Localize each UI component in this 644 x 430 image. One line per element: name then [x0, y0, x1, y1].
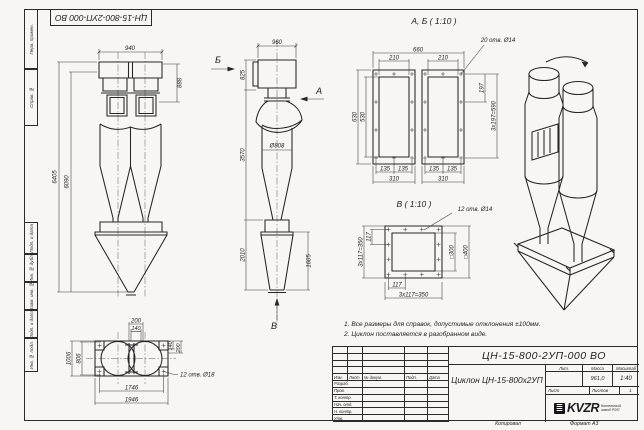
title-block-revision-grid: Изм. Лист № докум. Подп. Дата Разраб. Пр… [333, 347, 449, 420]
company-name: Котельный завод РЭП [601, 404, 631, 413]
dim-825: 825 [241, 69, 247, 80]
dim-806: 806 [77, 353, 83, 364]
frame-label-text: Справ. № [29, 87, 34, 108]
dim-3570: 3570 [241, 148, 247, 162]
scale-value: 1:40 [613, 372, 639, 386]
dim-660: 660 [413, 48, 424, 54]
side-view-outline [253, 60, 302, 293]
drawing-notes: 1. Все размеры для справок, допустимые о… [344, 320, 634, 340]
dim-135-1: 135 [380, 167, 391, 173]
lit-cells [546, 372, 583, 386]
dim-210-left: 210 [388, 56, 400, 62]
plan-view-outline [95, 341, 168, 376]
company-logo-text: KVZR [567, 401, 599, 415]
side-view-dim-lines [244, 43, 324, 320]
front-view-outline [95, 62, 167, 295]
frame-label-text: Подп. и дата [29, 310, 34, 339]
holes-note-20: 20 отв. Ø14 [480, 38, 516, 44]
front-view-drawing: 940 888 6405 6090 Б [45, 36, 245, 328]
frame-label-podp-data-1: Подп. и дата [24, 222, 38, 254]
dim-530: 530 [361, 111, 367, 122]
dim-3x117-left: 3x117=350 [359, 237, 365, 267]
mass-label: Масса [583, 365, 613, 371]
format-label: Формат А3 [570, 421, 598, 427]
dim-940: 940 [125, 46, 136, 52]
flange-outlines [373, 70, 464, 164]
dim-1006: 1006 [67, 351, 73, 365]
sheet-label: Лист [546, 387, 590, 394]
view-arrow-label-a: А [315, 86, 322, 96]
product-name: Циклон ЦН-15-800х2УП [449, 365, 546, 422]
company-logo-icon: ≣ [554, 403, 565, 414]
view-ab-flanges-drawing: А, Б ( 1:10 ) 660 210 210 630 5 [346, 12, 532, 194]
view-v-flange-drawing: В ( 1:10 ) 3x117=350 117 □300 □400 12 от… [352, 196, 504, 322]
dim-1605: 1605 [307, 254, 313, 268]
frame-label-text: Подп. и дата [29, 224, 34, 253]
dim-square-400: □400 [464, 245, 470, 259]
holes-note-12-14: 12 отв. Ø14 [458, 207, 493, 213]
copied-label: Копировал [468, 421, 548, 427]
frame-label-sprav-no: Справ. № [24, 69, 38, 126]
dim-135-2: 135 [398, 167, 409, 173]
dim-888: 888 [178, 77, 184, 88]
frame-label-inv-dubl: Инв. № дубл. [24, 254, 38, 282]
dim-2010: 2010 [241, 248, 247, 263]
dim-960: 960 [272, 40, 283, 46]
frame-label-text: Инв. № дубл. [29, 254, 34, 282]
dim-117-bottom: 117 [392, 283, 402, 289]
row-tkontr: Т. контр. [333, 395, 363, 402]
dim-117-top: 117 [367, 232, 373, 242]
col-izm: Изм. [333, 374, 348, 381]
col-docnum: № докум. [363, 374, 405, 381]
view-ab-title: А, Б ( 1:10 ) [410, 16, 456, 26]
plan-view-drawing: 200 140 140 200 1006 806 1746 1946 12 от… [52, 316, 247, 428]
lit-label: Лит. [546, 365, 583, 371]
dim-200-right: 200 [176, 344, 182, 354]
isometric-view-drawing [512, 48, 622, 323]
square-flange-holes [387, 228, 441, 277]
row-utv: Утв. [333, 415, 363, 422]
note-line-1: 1. Все размеры для справок, допустимые о… [344, 320, 634, 330]
frame-label-vzam-inv: Взам. инв. № [24, 282, 38, 310]
dim-3x117-bottom: 3x117=350 [399, 293, 429, 299]
title-block: Изм. Лист № докум. Подп. Дата Разраб. Пр… [332, 346, 638, 421]
scale-label: Масштаб [613, 365, 639, 371]
frame-label-text: Взам. инв. № [29, 282, 34, 310]
frame-label-text: Перв. примен. [29, 24, 34, 55]
note-line-2: 2. Циклон поставляется в разобранном вид… [344, 330, 634, 340]
view-v-title: В ( 1:10 ) [397, 199, 432, 209]
dim-square-300: □300 [450, 245, 456, 259]
dim-310-left: 310 [389, 177, 400, 183]
sheets-label: Листов [590, 387, 620, 394]
document-code-rotated: ЦН-15-800-2УП-000 ВО [55, 13, 147, 23]
frame-label-text: Инв. № подл. [29, 341, 34, 370]
dim-135-3: 135 [429, 167, 440, 173]
title-block-right: ЦН-15-800-2УП-000 ВО Циклон ЦН-15-800х2У… [449, 347, 639, 420]
col-data: Дата [428, 374, 449, 381]
holes-note-12-18: 12 отв. Ø18 [180, 373, 215, 379]
row-nachotd: Нач. отд. [333, 402, 363, 409]
document-code: ЦН-15-800-2УП-000 ВО [449, 347, 639, 365]
sheets-value: 1 [620, 387, 639, 394]
dim-197: 197 [480, 82, 486, 93]
dim-135-4: 135 [447, 167, 458, 173]
col-list: Лист [348, 374, 363, 381]
drawing-sheet: Перв. примен. Справ. № Подп. и дата Инв.… [0, 0, 644, 430]
dim-210-right: 210 [437, 56, 449, 62]
dim-140-top: 140 [132, 326, 141, 332]
view-arrow-label-b: Б [215, 55, 221, 65]
dim-1946: 1946 [125, 398, 139, 404]
title-block-info: Лит. Масса Масштаб 961,0 1:40 Лист Листо… [546, 365, 639, 422]
dim-3x197: 3x197=590 [492, 100, 498, 131]
mass-value: 961,0 [583, 372, 613, 386]
side-view-drawing: 960 825 3570 2010 1605 Ø808 А В [232, 28, 350, 333]
flange-bolt-holes [374, 72, 463, 160]
dim-6090: 6090 [65, 175, 71, 189]
col-podp: Подп. [405, 374, 428, 381]
dim-1746: 1746 [125, 386, 139, 392]
dim-diameter-808: Ø808 [269, 144, 285, 150]
company-block: ≣ KVZR Котельный завод РЭП [546, 395, 639, 421]
dim-200-top: 200 [130, 319, 142, 325]
frame-label-podp-data-2: Подп. и дата [24, 310, 38, 338]
row-razrab: Разраб. [333, 381, 363, 388]
row-nkontr: Н. контр. [333, 408, 363, 415]
square-flange-outline [385, 226, 442, 278]
top-document-code-stamp: ЦН-15-800-2УП-000 ВО [50, 9, 152, 26]
view-arrow-label-v: В [271, 321, 277, 331]
frame-label-inv-podl: Инв. № подл. [24, 338, 38, 372]
frame-label-perv-primen: Перв. примен. [24, 9, 38, 69]
iso-outline [514, 57, 614, 310]
dim-140-right: 140 [168, 342, 174, 351]
dim-6405: 6405 [53, 170, 59, 184]
plan-dim-lines [70, 322, 183, 405]
row-prov: Пров. [333, 388, 363, 395]
dim-630: 630 [353, 111, 359, 122]
dim-310-right: 310 [438, 177, 449, 183]
